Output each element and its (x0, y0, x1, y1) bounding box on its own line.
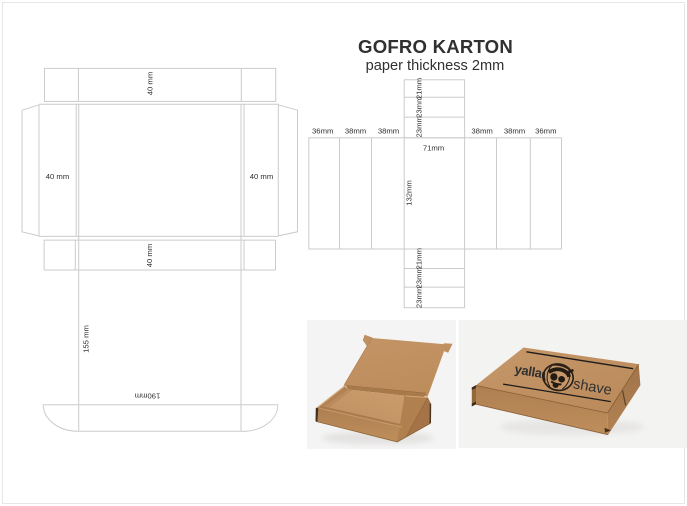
svg-text:40 mm: 40 mm (46, 172, 70, 181)
svg-text:23mm: 23mm (414, 116, 423, 137)
svg-text:23mm: 23mm (415, 267, 424, 288)
svg-text:36mm: 36mm (535, 126, 556, 135)
svg-text:155 mm: 155 mm (82, 325, 91, 353)
svg-text:36mm: 36mm (312, 126, 333, 135)
svg-text:38mm: 38mm (345, 126, 366, 135)
svg-text:38mm: 38mm (504, 126, 525, 135)
svg-text:paper thickness 2mm: paper thickness 2mm (366, 58, 505, 74)
svg-text:38mm: 38mm (471, 126, 492, 135)
svg-text:40 mm: 40 mm (145, 244, 154, 268)
svg-text:71mm: 71mm (423, 144, 444, 153)
svg-text:190mm: 190mm (135, 391, 161, 400)
svg-text:40 mm: 40 mm (146, 72, 155, 96)
svg-text:21mm: 21mm (414, 78, 423, 99)
svg-text:23mm: 23mm (414, 97, 423, 118)
svg-text:23mm: 23mm (415, 287, 424, 308)
svg-text:40 mm: 40 mm (250, 172, 274, 181)
svg-text:132mm: 132mm (405, 180, 414, 206)
svg-text:38mm: 38mm (378, 126, 399, 135)
svg-text:GOFRO KARTON: GOFRO KARTON (358, 36, 513, 57)
svg-text:21mm: 21mm (415, 248, 424, 269)
